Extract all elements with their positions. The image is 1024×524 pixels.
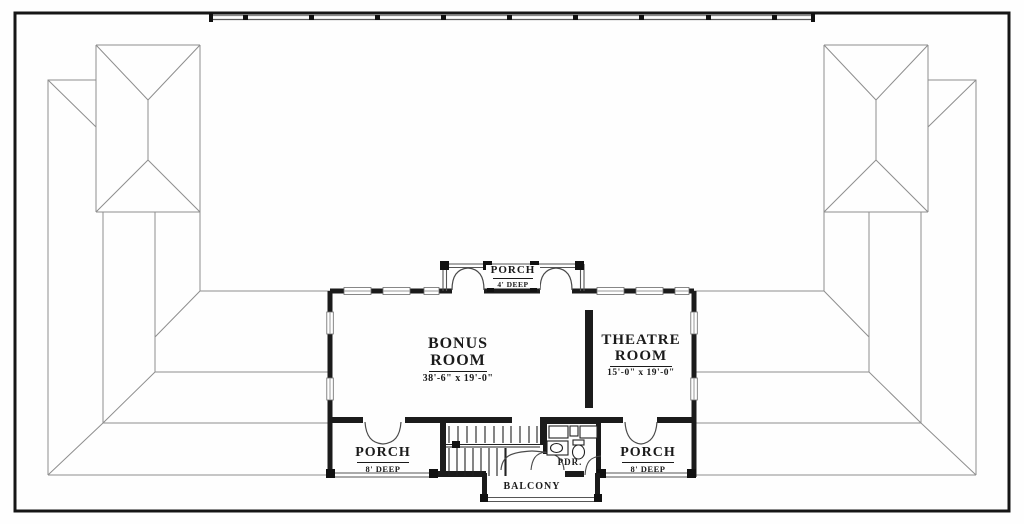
staircase — [440, 417, 546, 477]
balcony-label: BALCONY — [493, 482, 571, 493]
floor-plan-drawing — [0, 0, 1024, 524]
bonus-room-label: BONUS ROOM 38'-6" x 19'-0" — [388, 336, 528, 384]
arched-opening — [625, 422, 657, 444]
right-porch-label: PORCH 8' DEEP — [604, 446, 692, 474]
cabinet — [549, 426, 568, 438]
cabinet — [570, 426, 578, 436]
floor-plan-sheet: BONUS ROOM 38'-6" x 19'-0" THEATRE ROOM … — [0, 0, 1024, 524]
stair-treads-upper — [449, 426, 537, 443]
right-wing-roof — [692, 45, 976, 475]
powder-room-label: PDR. — [551, 458, 589, 467]
sink-icon — [547, 441, 568, 455]
sheet-border — [15, 13, 1009, 511]
left-wing-roof — [48, 45, 332, 475]
left-porch-label: PORCH 8' DEEP — [339, 446, 427, 474]
top-porch-label: PORCH 4' DEEP — [486, 265, 540, 288]
theatre-room-label: THEATRE ROOM 15'-0" x 19'-0" — [578, 333, 704, 378]
arched-opening — [365, 422, 401, 444]
cabinet — [580, 426, 597, 438]
